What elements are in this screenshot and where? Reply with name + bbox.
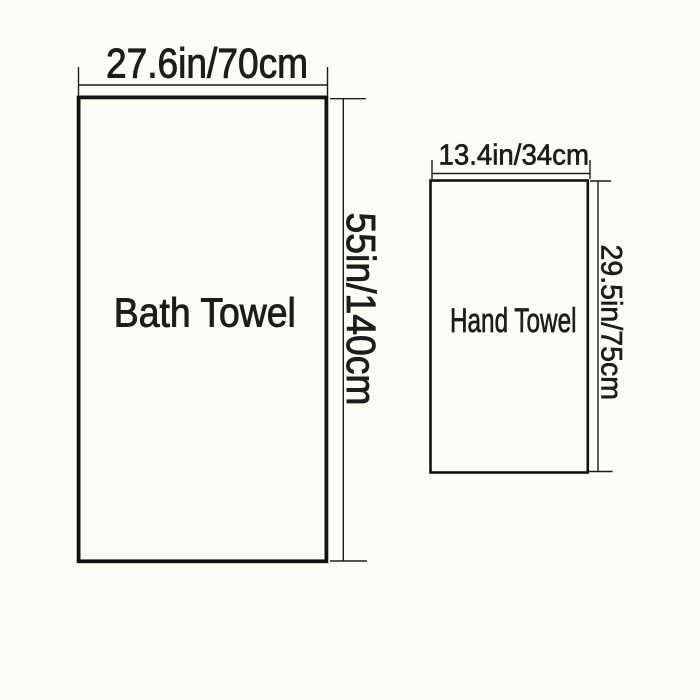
svg-text:27.6in/70cm: 27.6in/70cm — [106, 40, 308, 87]
svg-text:Bath Towel: Bath Towel — [114, 290, 296, 336]
svg-text:29.5in/75cm: 29.5in/75cm — [594, 245, 627, 401]
svg-text:13.4in/34cm: 13.4in/34cm — [439, 140, 590, 172]
svg-text:Hand Towel: Hand Towel — [450, 302, 577, 340]
svg-text:55in/140cm: 55in/140cm — [338, 213, 384, 406]
